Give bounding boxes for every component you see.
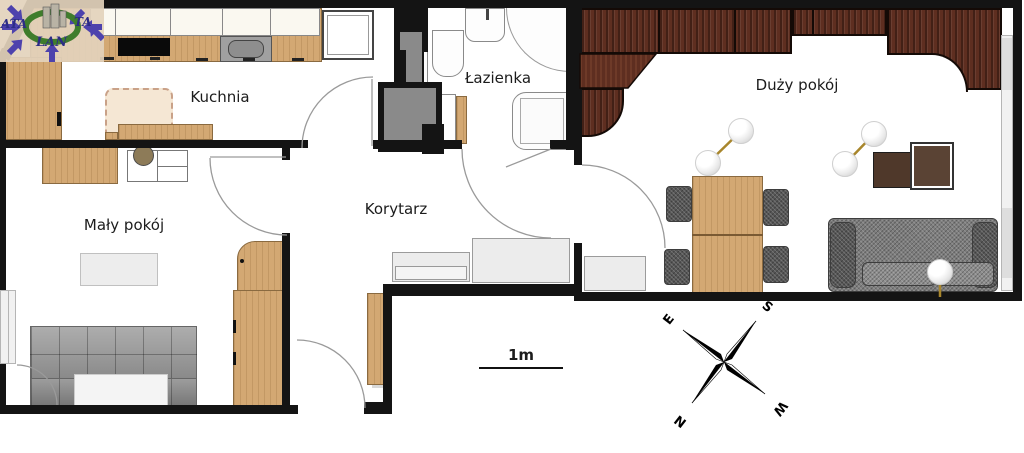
compass-rose: S E N W <box>661 298 790 430</box>
fridge-inner <box>327 15 369 55</box>
small-room-desk <box>42 147 118 184</box>
faucet <box>486 9 489 20</box>
pendant-lamp-globe <box>695 150 721 176</box>
logo-text-ata: ATA <box>1 17 27 31</box>
logo-text-ta: TA <box>74 15 92 29</box>
floor-plan: Kuchnia Łazienka Mały pokój Korytarz <box>0 0 1024 453</box>
pendant-lamp-globe <box>728 118 754 144</box>
window-sash <box>1002 38 1012 90</box>
desk-knob <box>240 259 244 263</box>
cabinet-divider <box>222 8 223 36</box>
dining-chair <box>763 189 789 226</box>
wall-smallroom-divider <box>282 233 290 414</box>
coffee-table-framed-top <box>914 146 950 186</box>
counter-handle <box>196 58 208 61</box>
wardrobe-handle <box>233 352 236 365</box>
door-arc-small-room <box>210 158 287 235</box>
wall-bottom-left <box>0 405 298 414</box>
dining-chair <box>666 186 692 222</box>
wall-nook-right <box>383 284 392 414</box>
window-sash <box>1002 208 1012 278</box>
wall-bath-bottom-left <box>373 140 462 149</box>
entrance-cabinet <box>367 293 384 385</box>
cooktop <box>118 38 170 56</box>
sofa-seam <box>30 354 197 355</box>
washing-machine-side <box>456 96 467 144</box>
counter-handle <box>292 58 304 61</box>
wall-bath-right <box>566 0 582 150</box>
door-arc-bathroom <box>462 149 551 238</box>
watermark-logo: ATA TA LAN <box>0 0 104 62</box>
wall-living-left-top <box>574 148 582 165</box>
counter-handle <box>243 58 255 61</box>
window-pane-line <box>8 290 9 364</box>
door-arc-living-room <box>582 165 665 248</box>
door-arc-entrance <box>297 340 365 408</box>
wardrobe-divider <box>734 8 736 54</box>
sofa-armrest <box>830 222 856 288</box>
cabinet-divider <box>170 8 171 36</box>
living-wardrobe-shallow <box>792 8 887 36</box>
sofa-blanket <box>74 374 168 407</box>
wall-living-bottom <box>574 292 1022 301</box>
pendant-lamp-globe <box>832 151 858 177</box>
wall-kitchen-bottom <box>0 140 308 148</box>
sink-basin <box>228 40 264 58</box>
shaft-step <box>422 124 444 154</box>
compass-south-label: S <box>759 298 776 316</box>
living-wardrobe-angled <box>580 54 656 88</box>
wall-corridor-bottom <box>383 284 578 296</box>
small-room-label: Mały pokój <box>84 216 164 234</box>
dining-chair <box>763 246 789 283</box>
compass-west-label: W <box>769 398 790 419</box>
kitchen-label: Kuchnia <box>190 88 249 106</box>
wardrobe-divider <box>658 8 660 54</box>
cabinet-divider <box>115 8 116 36</box>
floor-lamp-globe <box>927 259 953 285</box>
corridor-label: Korytarz <box>365 200 427 218</box>
compass-east-label: E <box>661 312 678 328</box>
kitchen-bench-end <box>105 132 118 140</box>
toilet <box>432 30 464 77</box>
corner-cut-left <box>887 53 932 92</box>
wall-smallroom-divider-top <box>282 148 290 160</box>
kitchen-tall-cabinet <box>0 57 62 140</box>
bathtub-inner <box>520 98 564 144</box>
living-wardrobe-run <box>580 8 792 54</box>
logo-graphic <box>0 0 104 62</box>
living-wardrobe-low <box>580 88 624 137</box>
pendant-lamp-globe <box>861 121 887 147</box>
wall-bottom-stub <box>364 402 392 414</box>
sofa-cushion <box>862 262 936 286</box>
bathroom-label: Łazienka <box>465 69 531 87</box>
shower-corner <box>506 8 570 72</box>
cabinet-divider <box>270 8 271 36</box>
dining-chair <box>664 249 690 285</box>
side-table-divider <box>157 166 188 167</box>
bathroom-sink <box>465 8 505 42</box>
living-cabinet <box>584 256 646 291</box>
wardrobe-handle <box>233 320 236 333</box>
dining-table-seam <box>692 234 763 236</box>
compass-north-label: N <box>672 411 690 430</box>
wall-top <box>28 0 1022 8</box>
corridor-bench-inner <box>395 266 467 280</box>
small-room-coffee-table <box>80 253 158 286</box>
scale-bar-line <box>479 367 563 369</box>
corridor-cabinet-large <box>472 238 570 283</box>
scale-bar-label: 1m <box>508 346 534 364</box>
door-leaf-bathroom <box>506 149 551 167</box>
stool <box>133 145 154 166</box>
kitchen-bench <box>118 124 213 140</box>
logo-text-lan: LAN <box>36 35 67 50</box>
kitchen-upper-cabinets <box>90 8 320 36</box>
small-room-wardrobe <box>233 290 283 407</box>
wall-living-right <box>1013 0 1022 301</box>
living-room-label: Duży pokój <box>756 76 839 94</box>
wardrobe-divider <box>812 8 814 36</box>
counter-handle <box>150 57 160 60</box>
door-arc-kitchen <box>302 77 373 148</box>
tall-cabinet-handle <box>57 112 61 126</box>
